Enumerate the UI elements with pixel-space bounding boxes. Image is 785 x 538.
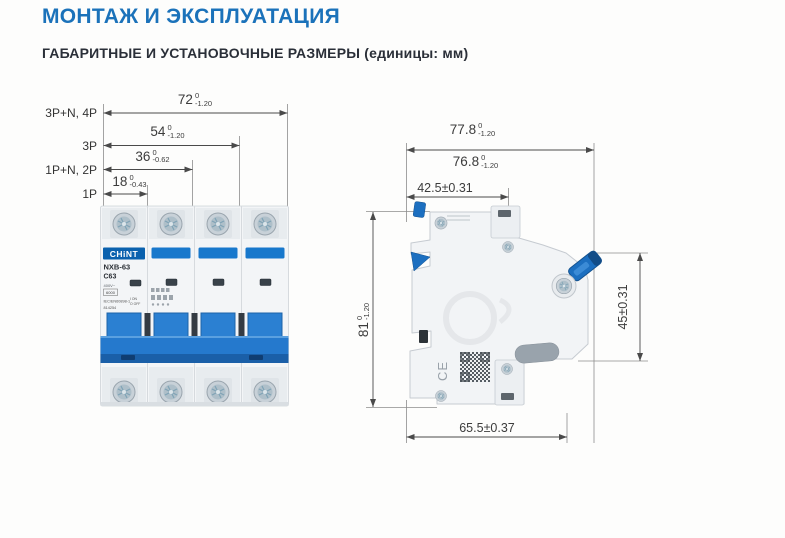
side-view-drawing: CE	[345, 115, 665, 450]
terminal-screw	[207, 213, 229, 235]
breaker-front-photo: CHiNT NXB-63 C63 400V~ 6000 IEC/EN60898-…	[101, 206, 289, 406]
din-clip-lower	[419, 330, 428, 343]
page: МОНТАЖ И ЭКСПЛУАТАЦИЯ ГАБАРИТНЫЕ И УСТАН…	[0, 0, 785, 538]
terminal-screw	[207, 381, 229, 403]
rivet-screw	[436, 391, 447, 402]
ce-mark: CE	[435, 361, 450, 381]
rivet-screw	[502, 364, 513, 375]
rating-text: C63	[104, 274, 117, 281]
extension-lines	[104, 104, 288, 211]
model-text: NXB-63	[104, 263, 131, 272]
din-clip-top	[413, 201, 426, 217]
terminal-screw	[113, 381, 135, 403]
terminal-block-top	[491, 206, 520, 238]
page-title: МОНТАЖ И ЭКСПЛУАТАЦИЯ	[42, 5, 340, 29]
code-text: 814254	[104, 306, 117, 310]
pivot-screw	[556, 278, 571, 293]
terminal-screw	[113, 213, 135, 235]
bottom-shadow	[101, 402, 289, 406]
toggle-handles	[107, 313, 282, 339]
module-blue-band	[152, 248, 285, 259]
breaking-capacity-text: 6000	[106, 290, 116, 295]
on-mark-text: I ON	[130, 297, 138, 301]
rivet-screw	[503, 242, 514, 253]
brand-text: CHiNT	[110, 249, 139, 259]
toggle-tie-bar	[101, 336, 289, 363]
off-mark-text: O OFF	[130, 302, 140, 306]
dimension-lines	[104, 113, 288, 194]
terminal-screw	[160, 213, 182, 235]
standard-text: IEC/EN60898-1	[104, 300, 131, 304]
front-view-drawing: CHiNT NXB-63 C63 400V~ 6000 IEC/EN60898-…	[33, 85, 333, 425]
mounting-slot	[514, 342, 559, 364]
terminal-screw	[160, 381, 182, 403]
breaker-side-photo: CE	[410, 201, 603, 405]
voltage-text: 400V~	[104, 283, 116, 288]
terminal-screw	[254, 213, 276, 235]
page-subtitle: ГАБАРИТНЫЕ И УСТАНОВОЧНЫЕ РАЗМЕРЫ (едини…	[42, 45, 468, 61]
rivet-screw	[435, 217, 447, 229]
terminal-screw	[254, 381, 276, 403]
qr-code	[460, 352, 490, 382]
